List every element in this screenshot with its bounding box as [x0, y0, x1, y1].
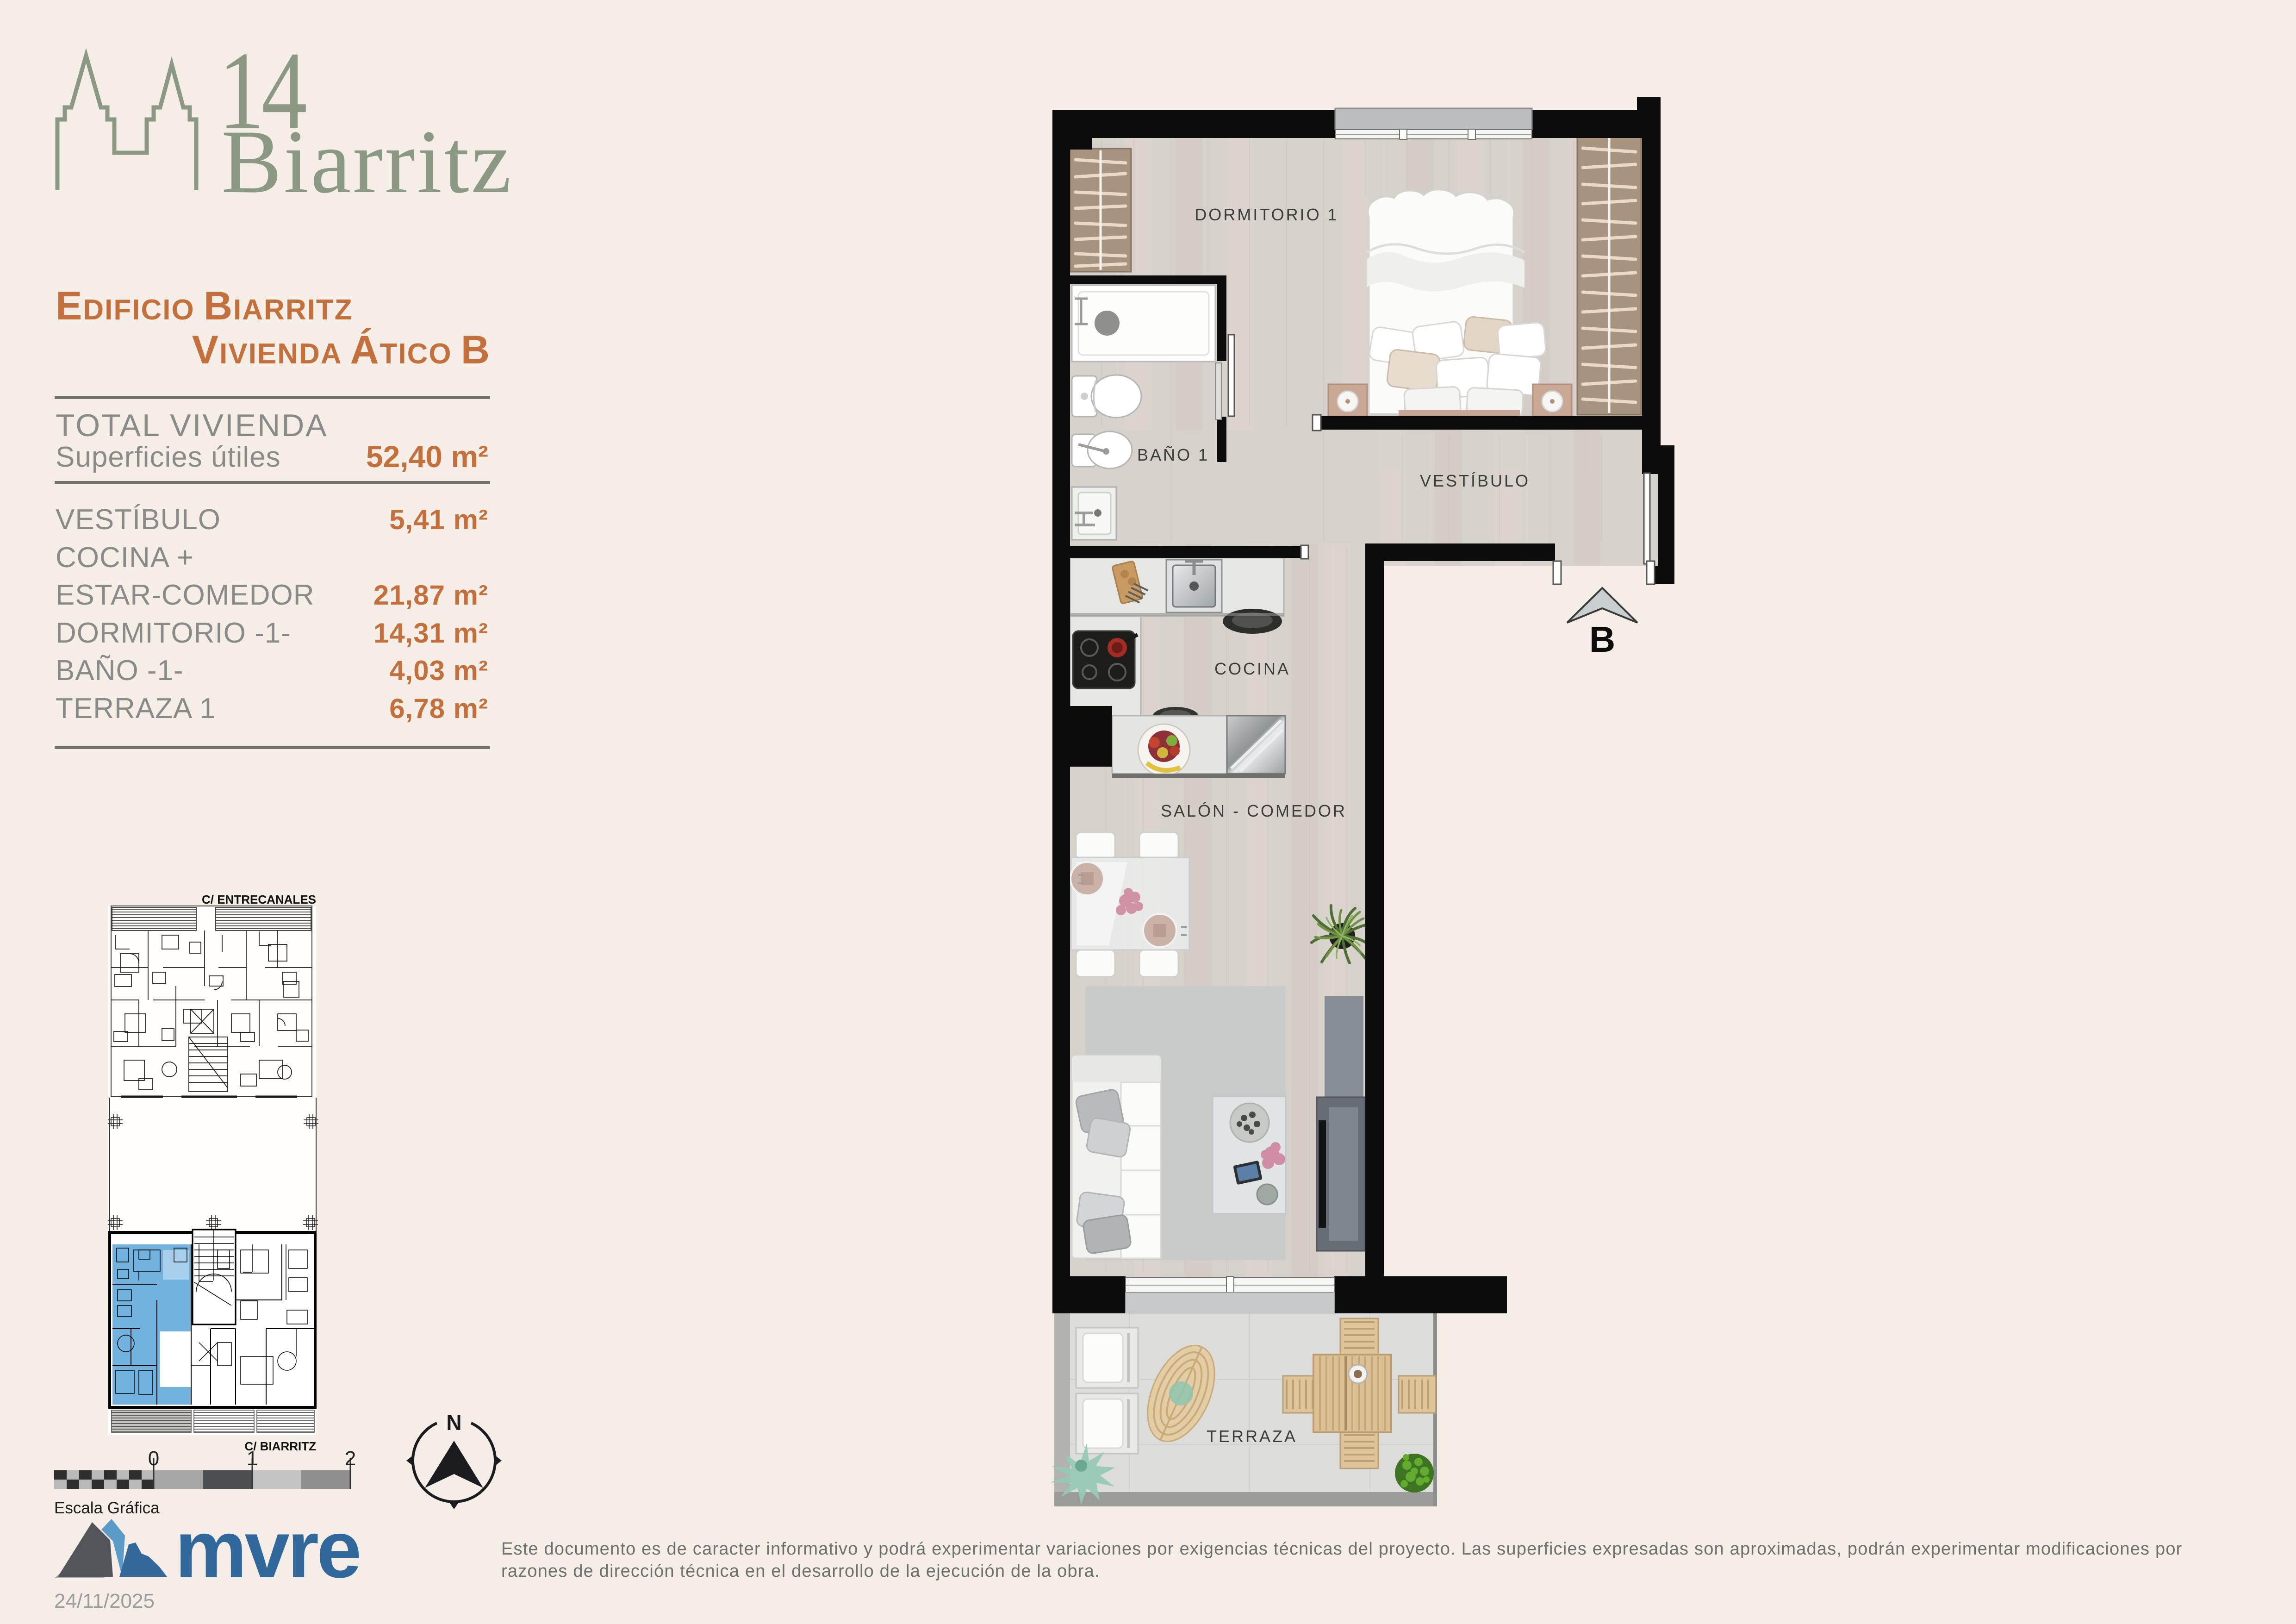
- svg-text:TERRAZA: TERRAZA: [1207, 1427, 1297, 1446]
- svg-text:DORMITORIO 1: DORMITORIO 1: [1195, 205, 1338, 224]
- svg-text:1: 1: [247, 1447, 258, 1470]
- svg-text:VESTÍBULO: VESTÍBULO: [1420, 471, 1530, 490]
- svg-text:COCINA: COCINA: [1214, 659, 1290, 678]
- svg-text:0: 0: [148, 1447, 159, 1470]
- svg-text:mvre: mvre: [175, 1514, 359, 1588]
- svg-text:C/ ENTRECANALES: C/ ENTRECANALES: [202, 893, 316, 906]
- svg-text:B: B: [1589, 619, 1615, 660]
- svg-text:BAÑO 1: BAÑO 1: [1137, 445, 1209, 464]
- svg-text:2: 2: [345, 1447, 356, 1470]
- svg-text:SALÓN - COMEDOR: SALÓN - COMEDOR: [1161, 801, 1347, 820]
- svg-text:N: N: [446, 1411, 461, 1435]
